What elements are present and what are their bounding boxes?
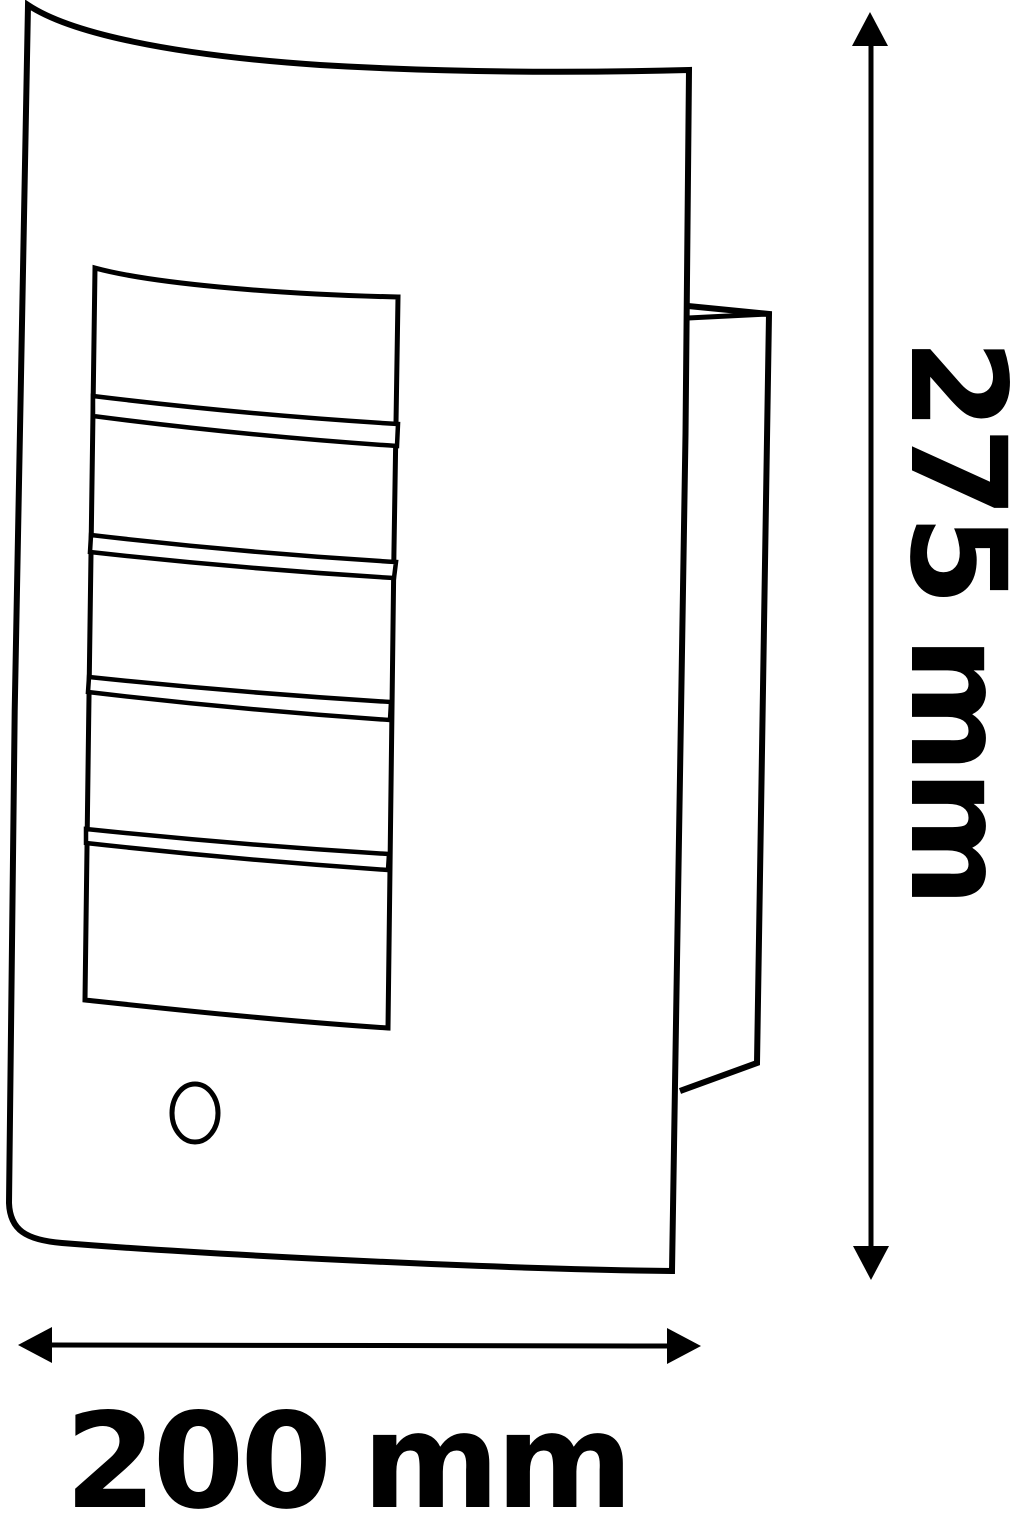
- arrowhead-left-icon: [18, 1327, 52, 1363]
- height-dimension-label: 275 mm: [891, 339, 1023, 904]
- arrowhead-down-icon: [853, 1246, 889, 1280]
- width-dimension-label: 200 mm: [65, 1396, 630, 1520]
- dimension-drawing: 275 mm 200 mm: [0, 0, 1024, 1520]
- sensor-circle: [172, 1084, 218, 1142]
- arrowhead-right-icon: [667, 1328, 701, 1364]
- lamp-line-art: [0, 0, 1024, 1520]
- arrowhead-up-icon: [852, 12, 888, 46]
- width-dimension-arrow: [18, 1327, 701, 1364]
- grille-panel: [85, 268, 398, 1028]
- mounting-bracket: [680, 306, 769, 1091]
